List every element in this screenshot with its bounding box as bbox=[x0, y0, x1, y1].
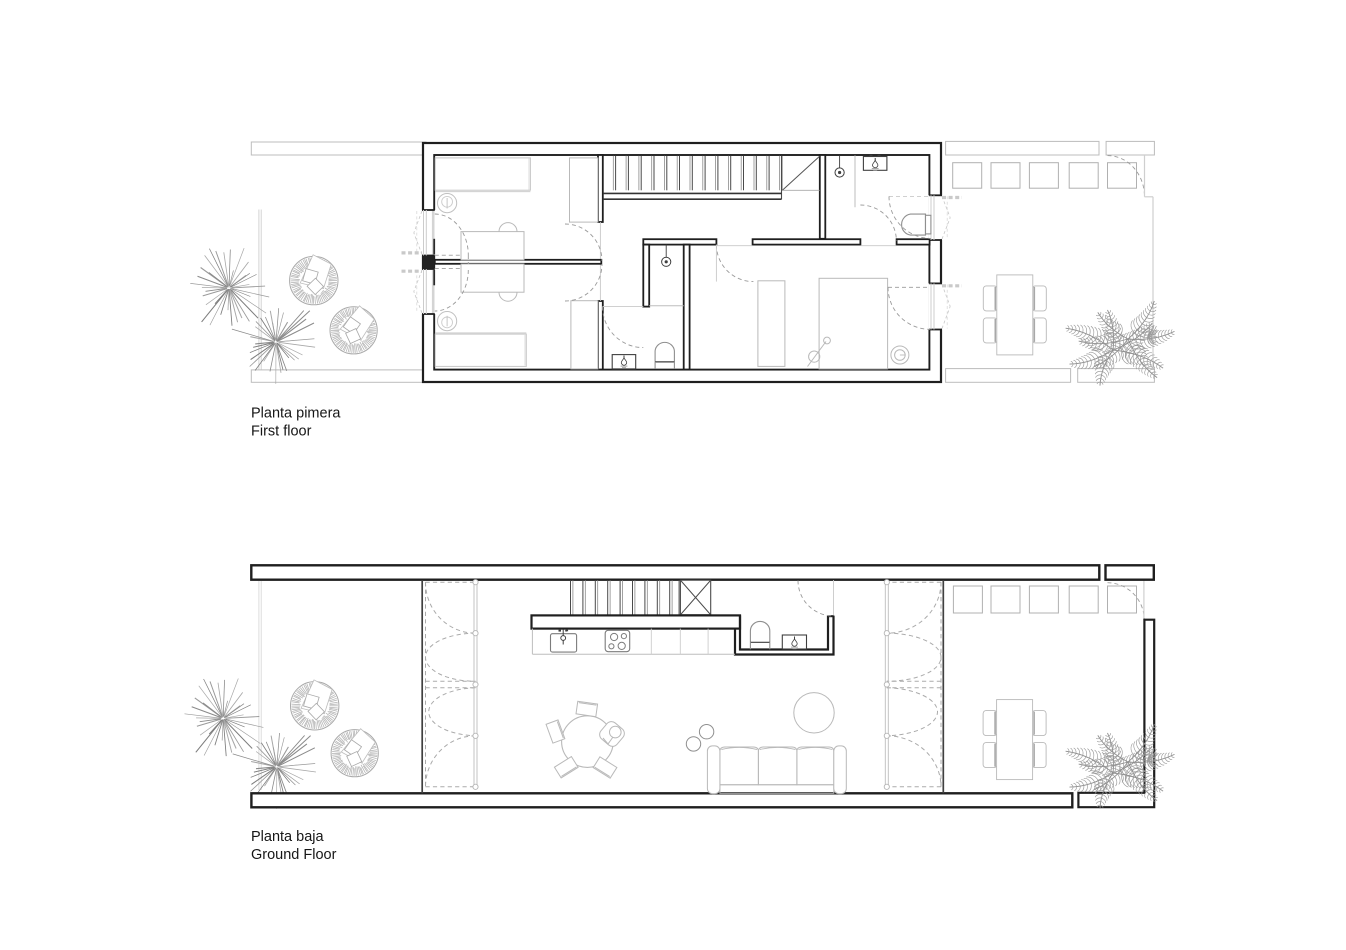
svg-text:Ground Floor: Ground Floor bbox=[251, 847, 337, 863]
svg-text:Planta baja: Planta baja bbox=[251, 829, 324, 845]
svg-text:First floor: First floor bbox=[251, 424, 312, 440]
svg-text:Planta pimera: Planta pimera bbox=[251, 406, 341, 422]
